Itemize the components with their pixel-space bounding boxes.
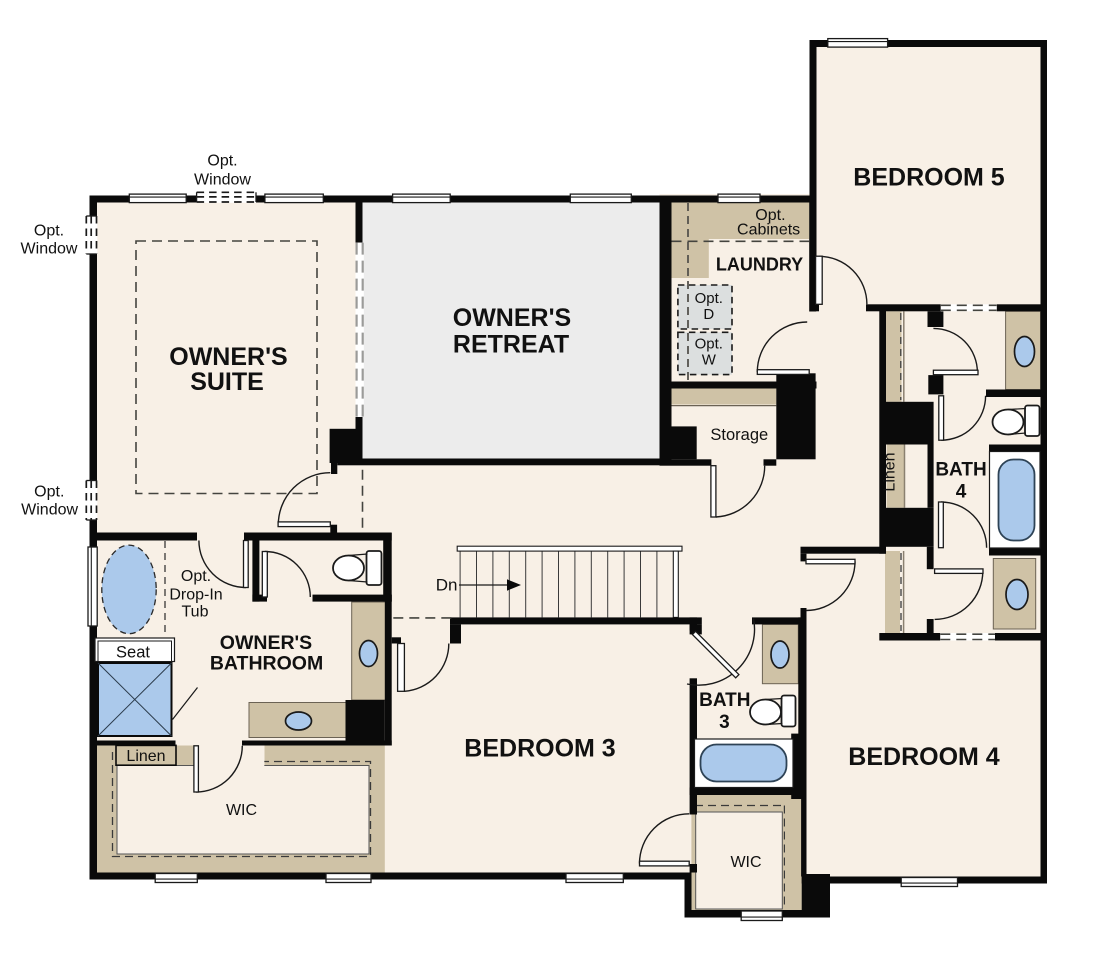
svg-text:Opt.: Opt.	[181, 568, 211, 585]
svg-text:BEDROOM 5: BEDROOM 5	[853, 164, 1005, 192]
svg-text:3: 3	[719, 712, 730, 733]
svg-text:Linen: Linen	[126, 748, 165, 765]
svg-text:WIC: WIC	[730, 854, 761, 871]
svg-text:Seat: Seat	[116, 644, 150, 662]
svg-text:Window: Window	[21, 241, 78, 258]
svg-text:LAUNDRY: LAUNDRY	[716, 254, 803, 274]
svg-text:OWNER'S: OWNER'S	[169, 343, 287, 371]
svg-text:W: W	[702, 352, 717, 369]
svg-text:Window: Window	[194, 172, 251, 189]
svg-text:Opt.: Opt.	[207, 153, 237, 170]
svg-text:Tub: Tub	[182, 604, 209, 621]
svg-text:BEDROOM 3: BEDROOM 3	[464, 735, 615, 763]
svg-text:OWNER'S: OWNER'S	[453, 304, 571, 332]
svg-text:Opt.: Opt.	[34, 484, 64, 501]
svg-text:BATHROOM: BATHROOM	[210, 653, 323, 675]
svg-text:Storage: Storage	[710, 426, 768, 444]
svg-text:Linen: Linen	[882, 452, 899, 491]
svg-text:BEDROOM 4: BEDROOM 4	[848, 743, 1000, 771]
svg-text:SUITE: SUITE	[190, 368, 264, 396]
svg-text:Window: Window	[21, 502, 78, 519]
svg-text:RETREAT: RETREAT	[453, 331, 569, 359]
svg-text:Opt.: Opt.	[695, 336, 723, 353]
svg-text:WIC: WIC	[226, 802, 257, 819]
svg-text:D: D	[703, 306, 714, 323]
svg-text:BATH: BATH	[935, 460, 986, 481]
svg-text:OWNER'S: OWNER'S	[220, 632, 312, 654]
svg-text:4: 4	[956, 482, 967, 503]
svg-text:Opt.: Opt.	[34, 222, 64, 239]
svg-text:Opt.: Opt.	[695, 290, 723, 307]
svg-text:Cabinets: Cabinets	[737, 221, 800, 238]
svg-text:Dn: Dn	[436, 576, 458, 595]
svg-text:Drop-In: Drop-In	[169, 587, 222, 604]
svg-text:BATH: BATH	[699, 690, 750, 711]
